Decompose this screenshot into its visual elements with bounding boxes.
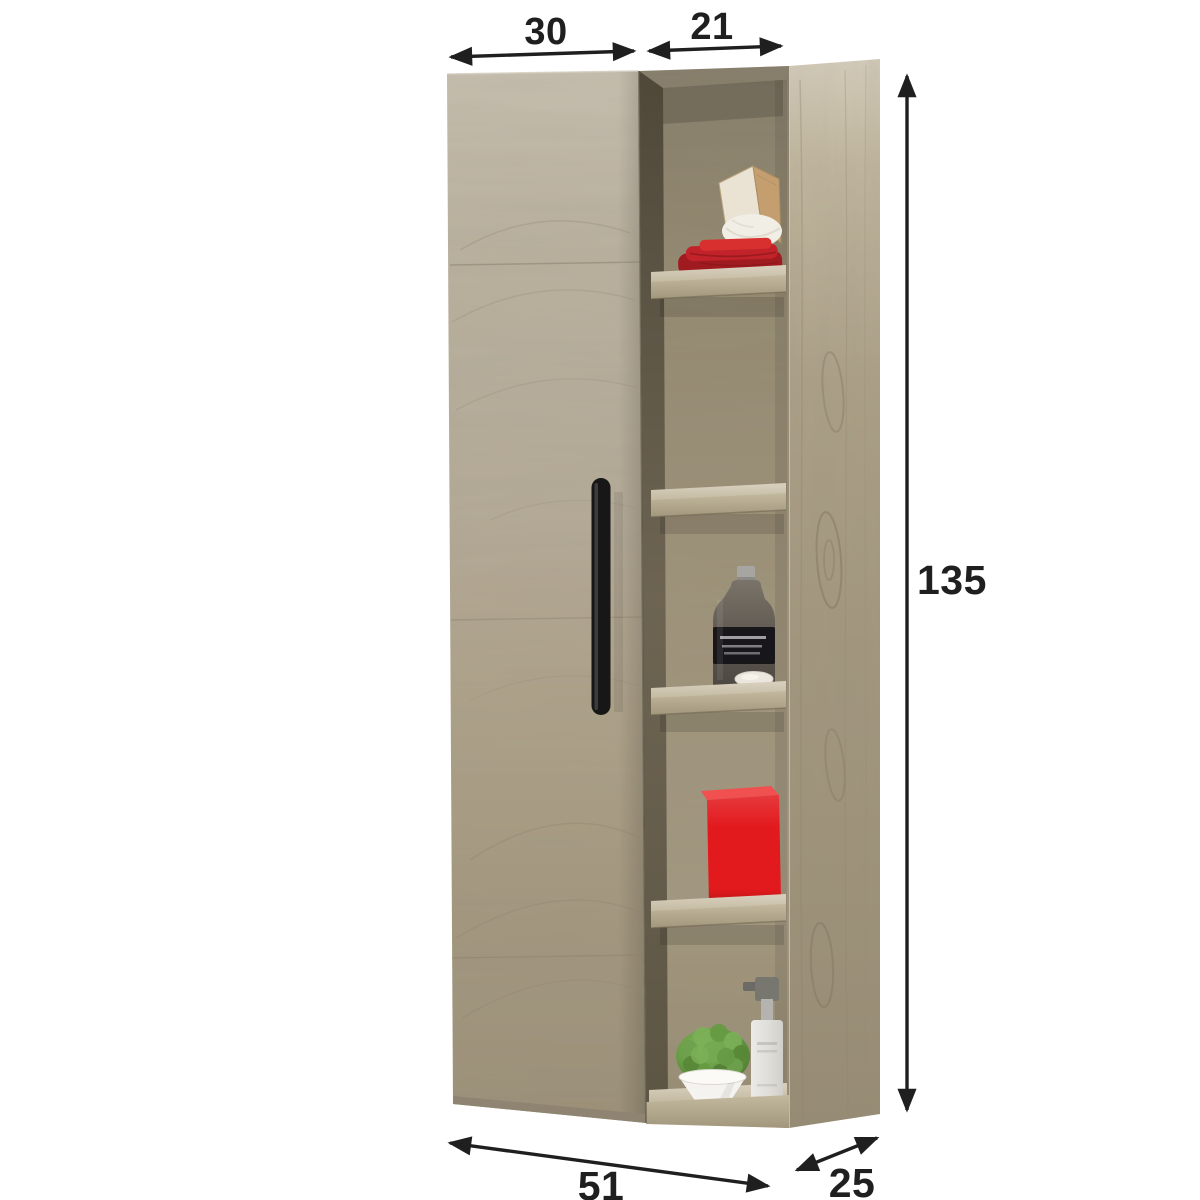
dimension-label-door-width: 30 [524,11,567,53]
dimension-label-shelf-width: 21 [690,6,733,48]
door-handle [592,478,624,715]
shelf-shadow [660,712,784,732]
shelf-shadow [660,297,784,317]
red-storage-box [701,786,781,905]
diagram-svg: 30 21 135 51 25 [0,0,1200,1200]
shelf-niche [639,66,789,1128]
dimension-label-depth: 25 [829,1160,876,1200]
cabinet [447,59,880,1128]
dimension-label-height: 135 [917,557,987,603]
shelf-shadow [660,514,784,534]
handle-shadow [614,492,623,712]
dim-total-width: 51 [450,1143,768,1200]
dim-shelf-width: 21 [649,6,781,51]
product-dimension-diagram: 30 21 135 51 25 [0,0,1200,1200]
dim-door-width: 30 [451,11,634,57]
shelf-shadow [660,925,784,945]
cabinet-side-panel [789,59,880,1128]
dim-height: 135 [907,76,987,1110]
dim-depth: 25 [797,1138,877,1200]
dimension-label-total-width: 51 [578,1163,625,1200]
